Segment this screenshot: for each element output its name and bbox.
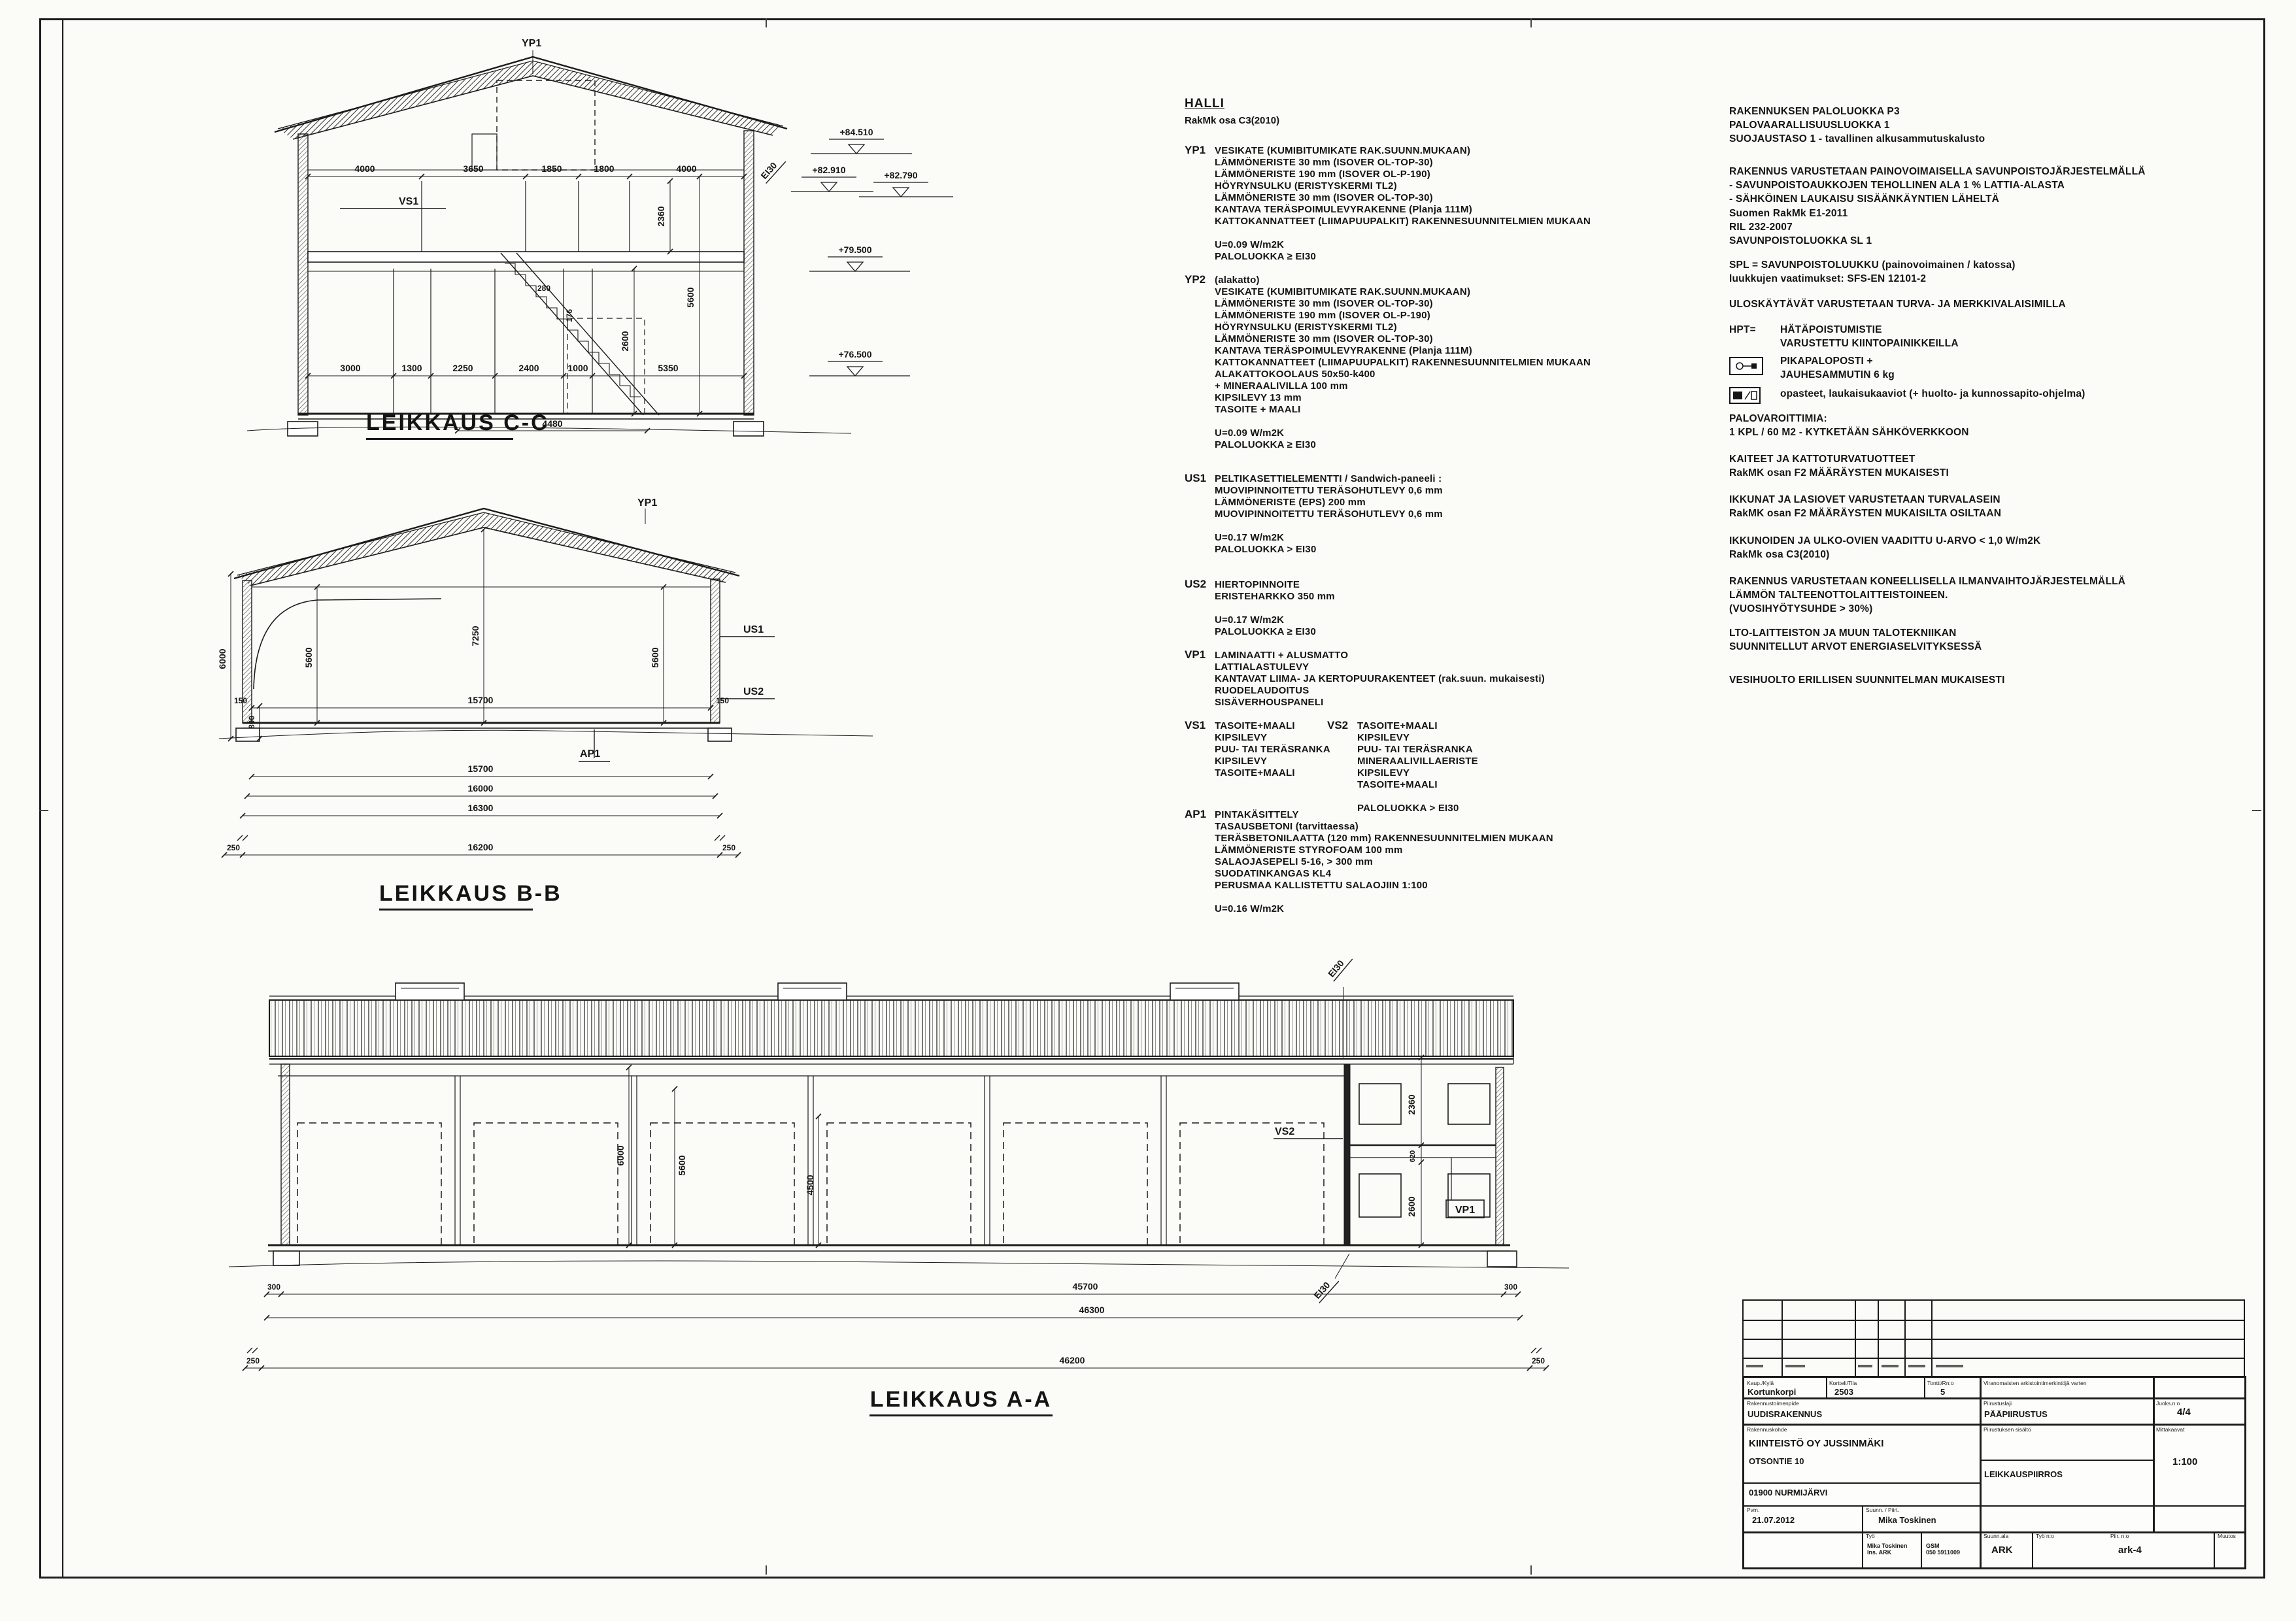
dim-label: 45700 xyxy=(1073,1281,1098,1292)
tb-label-piirnro: Piir. n:o xyxy=(2110,1533,2129,1539)
note-water-supply: VESIHUOLTO ERILLISEN SUUNNITELMAN MUKAIS… xyxy=(1729,673,2272,687)
revision-header-mark xyxy=(1936,1365,1963,1367)
elevation-label: +84.510 xyxy=(840,127,873,137)
yp1-label: YP1 xyxy=(522,38,541,49)
spec-text-vs2: TASOITE+MAALI KIPSILEVY PUU- TAI TERÄSRA… xyxy=(1357,720,1478,814)
dim-label: 1000 xyxy=(567,363,588,373)
elevation-label: +79.500 xyxy=(839,244,872,255)
note-signage: opasteet, laukaisukaaviot (+ huolto- ja … xyxy=(1780,387,2296,401)
tb-value-toimenpide: UUDISRAKENNUS xyxy=(1747,1409,1822,1419)
tb-value-suunn: Mika Toskinen xyxy=(1878,1515,1936,1525)
note-safety-glass: IKKUNAT JA LASIOVET VARUSTETAAN TURVALAS… xyxy=(1729,493,2272,520)
tb-label-sisalto: Piirustuksen sisältö xyxy=(1984,1426,2031,1433)
dim-label: 46200 xyxy=(1060,1355,1085,1365)
tb-label-piirlaji: Piirustuslaji xyxy=(1984,1400,2012,1407)
tb-label-ala: Suunn.ala xyxy=(1984,1533,2008,1539)
spec-text-ap1: PINTAKÄSITTELY TASAUSBETONI (tarvittaess… xyxy=(1215,809,1553,915)
dim-label: 3000 xyxy=(340,363,360,373)
elevation-label: +82.910 xyxy=(813,165,846,175)
dim-label: 4000 xyxy=(354,163,375,174)
exit-sign-icon xyxy=(1729,387,1761,404)
dim-label: 300 xyxy=(1504,1282,1517,1292)
spec-code-yp1: YP1 xyxy=(1185,144,1206,157)
dim-label: 5600 xyxy=(650,647,660,667)
tb-value-ala: ARK xyxy=(1991,1545,2013,1556)
svg-text:EI30: EI30 xyxy=(1326,958,1346,979)
dim-label: 250 xyxy=(1532,1356,1545,1365)
note-codes: Suomen RakMk E1-2011 RIL 232-2007 SAVUNP… xyxy=(1729,207,2272,248)
tb-label-arkisto: Viranomaisten arkistointimerkintöjä vart… xyxy=(1984,1380,2087,1386)
fold-mark xyxy=(39,810,48,811)
svg-text:EI30: EI30 xyxy=(758,160,779,181)
section-aa-drawing: 6000 5600 4500 2360 620 2600 300 45700 3… xyxy=(229,960,1647,1404)
dim-label: 620 xyxy=(1409,1150,1417,1162)
ap1-label: AP1 xyxy=(580,748,600,760)
revision-header-mark xyxy=(1785,1365,1805,1367)
section-bb-title: LEIKKAUS B-B xyxy=(379,881,533,911)
dim-label: 2360 xyxy=(656,206,666,226)
spec-block-subtitle: RakMk osa C3(2010) xyxy=(1185,115,1279,126)
revision-header-mark xyxy=(1858,1365,1872,1367)
dim-label: 16200 xyxy=(468,842,494,852)
fire-hose-reel-icon xyxy=(1729,357,1763,375)
elevation-markers: +84.510 +82.910 +82.790 +79.500 +76.500 xyxy=(791,121,968,395)
tb-label-kortteli: Kortteli/Tila xyxy=(1829,1380,1857,1386)
note-spl: SPL = SAVUNPOISTOLUUKKU (painovoimainen … xyxy=(1729,258,2272,286)
dim-label: 46300 xyxy=(1079,1305,1105,1315)
tb-value-tontti: 5 xyxy=(1940,1387,1945,1397)
tb-value-kohde1: KIINTEISTÖ OY JUSSINMÄKI xyxy=(1749,1438,1883,1449)
stair-dim-label: 176 xyxy=(565,309,574,322)
dim-label: 4500 xyxy=(805,1175,815,1195)
spec-code-vs1: VS1 xyxy=(1185,719,1206,732)
cc-stair xyxy=(501,253,659,415)
cc-structure xyxy=(247,80,851,436)
note-hpt-code: HPT= xyxy=(1729,323,1775,337)
note-hpt: HÄTÄPOISTUMISTIE VARUSTETTU KIINTOPAINIK… xyxy=(1780,323,2296,350)
note-lto: LTO-LAITTEISTON JA MUUN TALOTEKNIIKAN SU… xyxy=(1729,626,2272,654)
tb-value-piirlaji: PÄÄPIIRUSTUS xyxy=(1984,1409,2048,1419)
cc-roof xyxy=(275,57,787,139)
stair-dim-label: 280 xyxy=(537,284,550,293)
dim-label: 250 xyxy=(722,843,735,852)
tb-value-sisalto: LEIKKAUSPIIRROS xyxy=(1984,1469,2063,1479)
section-cc-title: LEIKKAUS C-C xyxy=(366,410,513,440)
dim-label: 4000 xyxy=(676,163,696,174)
title-block: Kaup./Kylä Kortunkorpi Kortteli/Tila 250… xyxy=(1742,1376,2246,1569)
revision-header-mark xyxy=(1746,1365,1763,1367)
tb-label-muutos: Muutos xyxy=(2218,1533,2236,1539)
svg-text:EI30: EI30 xyxy=(1311,1280,1332,1301)
svg-text:US1: US1 xyxy=(743,624,764,635)
dim-label: 3650 xyxy=(463,163,483,174)
dim-label: 2360 xyxy=(1406,1094,1417,1114)
vp1-label: VP1 xyxy=(1455,1205,1475,1216)
spec-text-vs1: TASOITE+MAALI KIPSILEVY PUU- TAI TERÄSRA… xyxy=(1215,720,1330,779)
spec-text-us1: PELTIKASETTIELEMENTTI / Sandwich-paneeli… xyxy=(1215,473,1443,556)
dim-label: 16000 xyxy=(468,783,494,794)
fold-mark xyxy=(1530,18,1532,27)
note-u-values: IKKUNOIDEN JA ULKO-OVIEN VAADITTU U-ARVO… xyxy=(1729,534,2272,561)
tb-label-pvm: Pvm. xyxy=(1747,1507,1759,1513)
revision-table xyxy=(1742,1299,2245,1377)
note-fire-class: RAKENNUKSEN PALOLUOKKA P3 PALOVAARALLISU… xyxy=(1729,105,2272,146)
spec-code-us1: US1 xyxy=(1185,472,1206,485)
spec-code-vp1: VP1 xyxy=(1185,648,1206,661)
bb-roof xyxy=(234,509,739,586)
tb-label-suunn: Suunn. / Piirt. xyxy=(1866,1507,1899,1513)
spec-text-us2: HIERTOPINNOITE ERISTEHARKKO 350 mm U=0.1… xyxy=(1215,579,1335,638)
tb-value-kohde3: 01900 NURMIJÄRVI xyxy=(1749,1488,1827,1497)
ei30-label: EI30 xyxy=(1310,1273,1338,1303)
fold-mark xyxy=(766,18,767,27)
dim-label: 6000 xyxy=(217,648,228,669)
note-exit-lighting: ULOSKÄYTÄVÄT VARUSTETAAN TURVA- JA MERKK… xyxy=(1729,297,2272,311)
note-smoke-alarms: PALOVAROITTIMIA: 1 KPL / 60 M2 - KYTKETÄ… xyxy=(1729,412,2272,439)
dim-label: 15700 xyxy=(468,763,494,774)
spec-code-vs2: VS2 xyxy=(1327,719,1348,732)
tb-gsm: GSM 050 5911009 xyxy=(1926,1543,1960,1556)
tb-value-pvm: 21.07.2012 xyxy=(1752,1515,1795,1525)
tb-label-tyo: Työ xyxy=(1866,1533,1875,1539)
tb-label-toimenpide: Rakennustoimenpide xyxy=(1747,1400,1799,1407)
dim-label: 800 xyxy=(247,716,256,729)
dim-label: 1850 xyxy=(541,163,562,174)
vs1-label: VS1 xyxy=(399,196,418,207)
spec-code-ap1: AP1 xyxy=(1185,808,1206,821)
fold-mark xyxy=(2252,810,2261,811)
spec-code-us2: US2 xyxy=(1185,578,1206,591)
dim-label: 2600 xyxy=(620,331,630,351)
tb-value-kortteli: 2503 xyxy=(1834,1387,1853,1397)
tb-label-tontti: Tontti/Rn:o xyxy=(1927,1380,1954,1386)
drawing-sheet: 4000 3650 1850 1800 4000 3000 1300 2250 … xyxy=(0,0,2296,1621)
dim-label: 1300 xyxy=(401,363,422,373)
tb-value-piirnro: ark-4 xyxy=(2118,1545,2142,1556)
ei30-label: EI30 xyxy=(757,154,785,183)
tb-value-lehti: 4/4 xyxy=(2177,1407,2191,1418)
dim-label: 5600 xyxy=(685,287,696,307)
revision-header-mark xyxy=(1882,1365,1899,1367)
dim-label: 250 xyxy=(246,1356,260,1365)
dim-label: 15700 xyxy=(468,695,494,705)
note-fire-post: PIKAPALOPOSTI + JAUHESAMMUTIN 6 kg xyxy=(1780,354,2296,382)
dim-label: 1800 xyxy=(594,163,614,174)
tb-label-kyla: Kaup./Kylä xyxy=(1747,1380,1774,1386)
dim-label: 5600 xyxy=(303,647,314,667)
dim-label: 7250 xyxy=(470,626,481,646)
fold-mark xyxy=(1530,1565,1532,1575)
tb-value-kyla: Kortunkorpi xyxy=(1747,1387,1796,1397)
spec-code-yp2: YP2 xyxy=(1185,273,1206,286)
tb-value-mittakaava: 1:100 xyxy=(2172,1456,2197,1467)
yp1-label: YP1 xyxy=(637,497,657,509)
note-ventilation: RAKENNUS VARUSTETAAN KONEELLISELLA ILMAN… xyxy=(1729,575,2272,616)
aa-roof-band xyxy=(269,983,1513,1064)
tb-label-lehti: Juoks.n:o xyxy=(2156,1400,2180,1407)
dim-label: 2600 xyxy=(1406,1196,1417,1216)
tb-label-tyonro: Työ n:o xyxy=(2036,1533,2054,1539)
tb-label-mittakaava: Mittakaavat xyxy=(2156,1426,2184,1433)
tb-value-kohde2: OTSONTIE 10 xyxy=(1749,1456,1804,1466)
dim-label: 5350 xyxy=(658,363,678,373)
us1-label: US1 xyxy=(743,624,764,635)
elevation-label: +76.500 xyxy=(839,349,872,359)
elevation-label: +82.790 xyxy=(885,170,918,180)
dim-label: 150 xyxy=(716,696,729,705)
dim-label: 6000 xyxy=(615,1145,626,1165)
revision-header-mark xyxy=(1908,1365,1925,1367)
dim-label: 2250 xyxy=(452,363,473,373)
svg-text:US2: US2 xyxy=(743,686,764,697)
tb-label-kohde: Rakennuskohde xyxy=(1747,1426,1787,1433)
sheet-border-inner xyxy=(62,18,63,1577)
dim-label: 300 xyxy=(267,1282,280,1292)
tb-signature: Mika Toskinen Ins. ARK xyxy=(1867,1543,1907,1556)
note-roof-safety: KAITEET JA KATTOTURVATUOTTEET RakMK osan… xyxy=(1729,452,2272,480)
dim-label: 250 xyxy=(227,843,240,852)
dim-label: 2400 xyxy=(518,363,539,373)
dim-label: 150 xyxy=(234,696,247,705)
spec-text-vp1: LAMINAATTI + ALUSMATTO LATTIALASTULEVY K… xyxy=(1215,650,1545,709)
dim-label: 16300 xyxy=(468,803,494,813)
fold-mark xyxy=(766,1565,767,1575)
note-smoke-extraction: RAKENNUS VARUSTETAAN PAINOVOIMAISELLA SA… xyxy=(1729,165,2272,206)
us2-label: US2 xyxy=(743,686,764,697)
vs2-label: VS2 xyxy=(1275,1126,1294,1137)
spec-text-yp2: (alakatto) VESIKATE (KUMIBITUMIKATE RAK.… xyxy=(1215,275,1591,451)
section-cc-drawing: 4000 3650 1850 1800 4000 3000 1300 2250 … xyxy=(242,36,856,441)
section-aa-title: LEIKKAUS A-A xyxy=(869,1387,1053,1416)
spec-block-title: HALLI xyxy=(1185,97,1224,111)
section-bb-drawing: 6000 800 5600 7250 5600 150 15700 150 15… xyxy=(219,495,873,927)
spec-text-yp1: VESIKATE (KUMIBITUMIKATE RAK.SUUNN.MUKAA… xyxy=(1215,145,1591,263)
dim-label: 5600 xyxy=(677,1155,687,1175)
